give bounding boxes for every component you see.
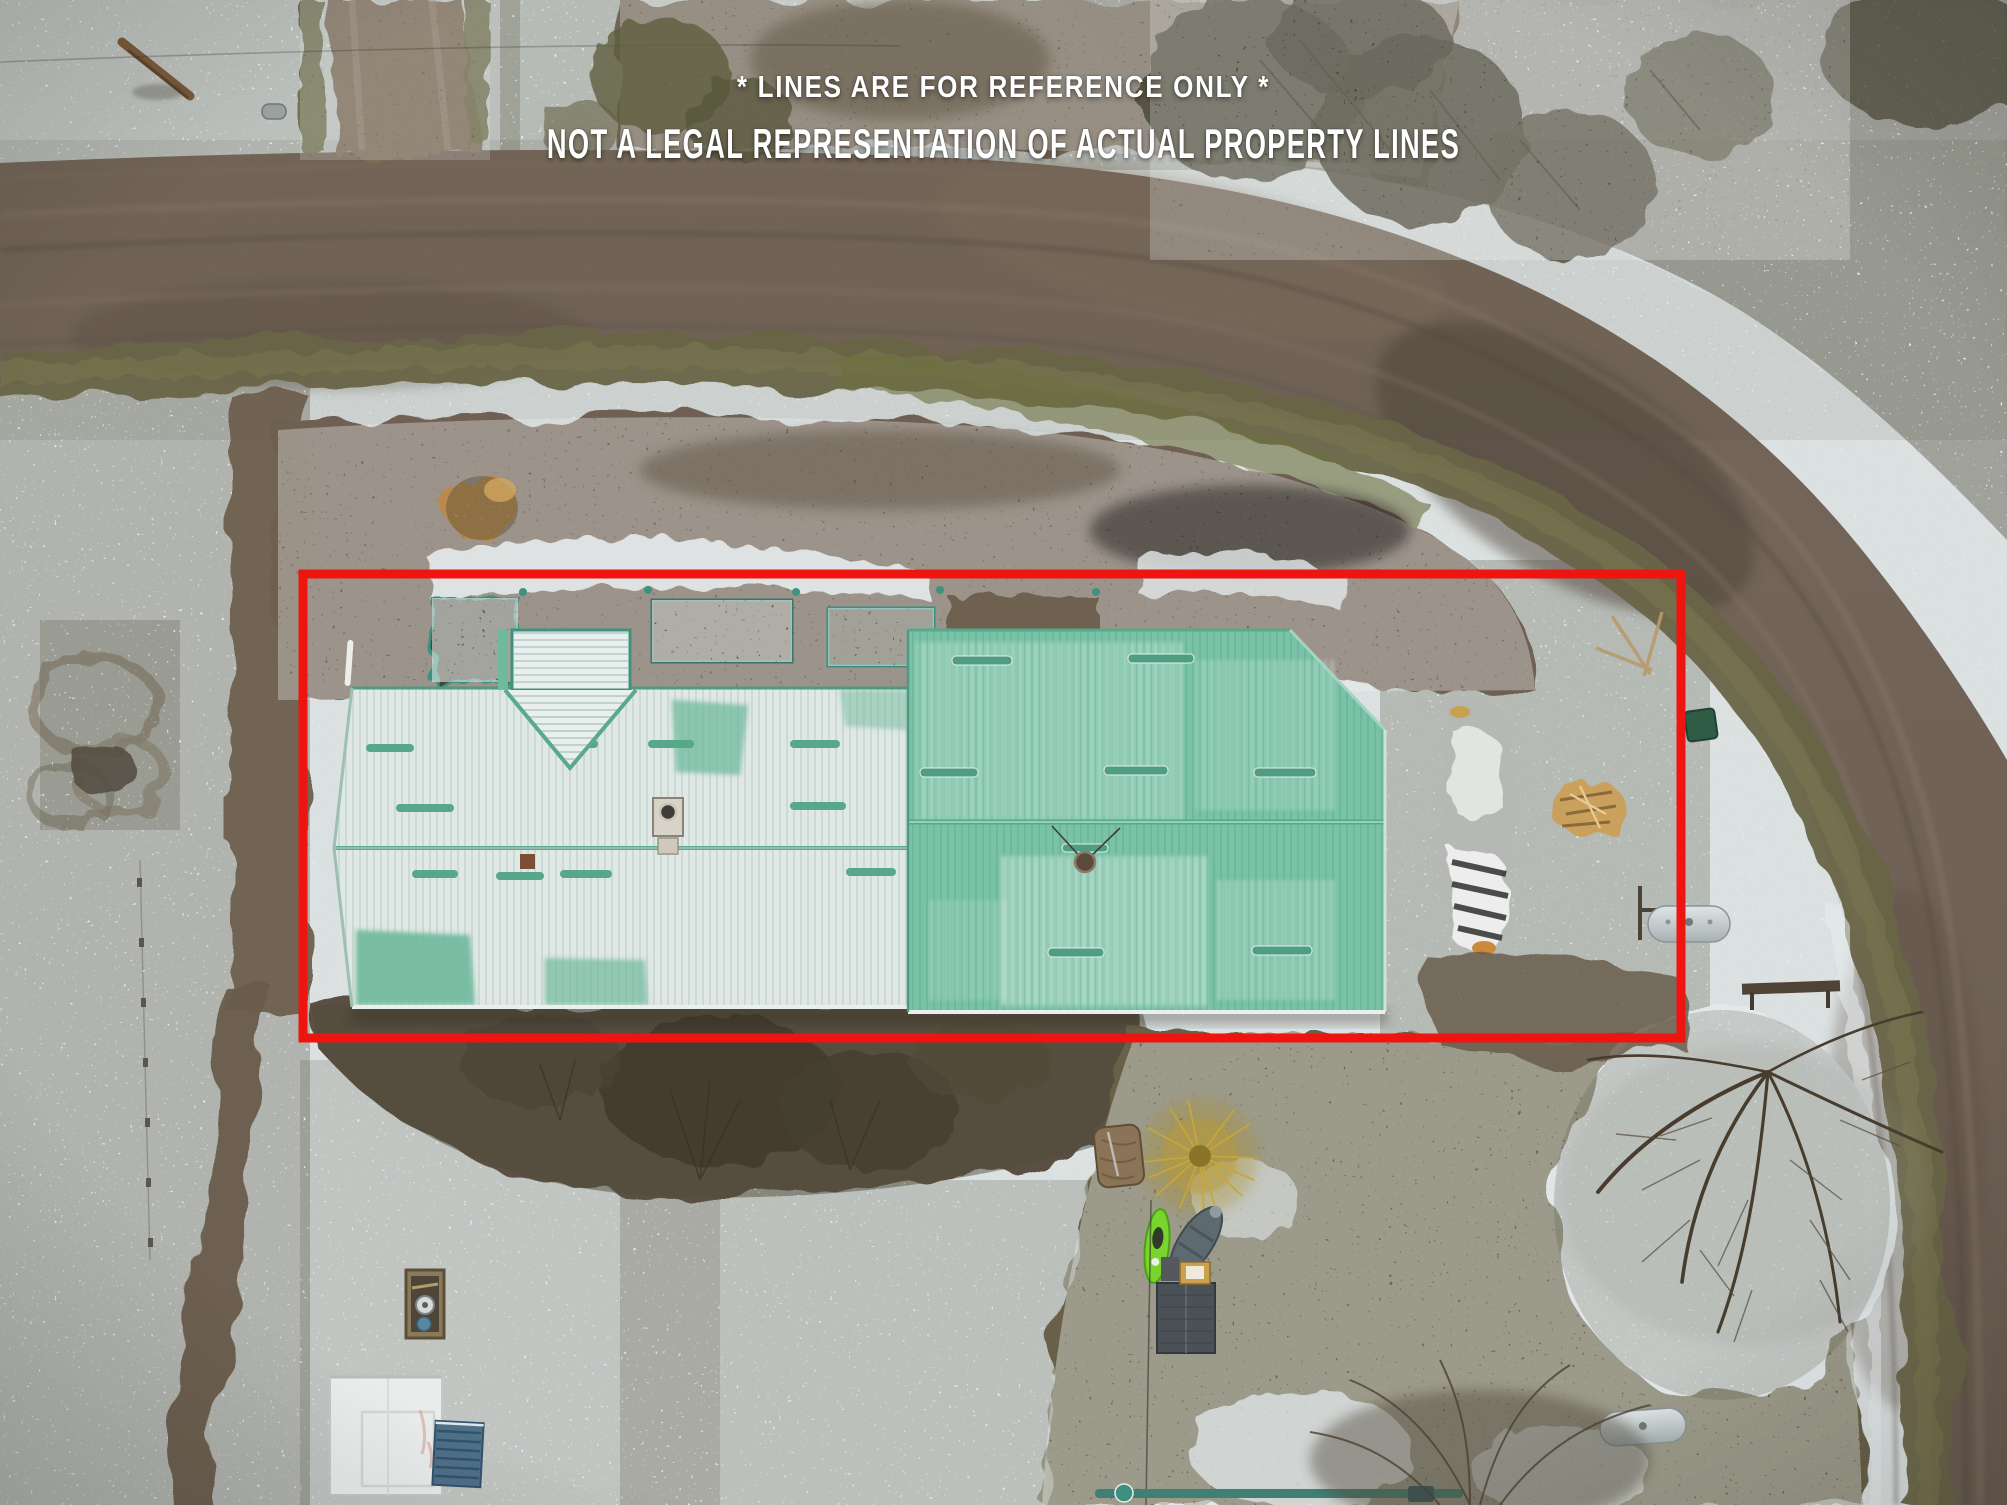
aerial-property-photo: * LINES ARE FOR REFERENCE ONLY * NOT A L… [0, 0, 2007, 1505]
disclaimer-line-1: * LINES ARE FOR REFERENCE ONLY * [161, 71, 1847, 102]
disclaimer-line-2: NOT A LEGAL REPRESENTATION OF ACTUAL PRO… [351, 123, 1656, 165]
vignette [0, 0, 2007, 1505]
